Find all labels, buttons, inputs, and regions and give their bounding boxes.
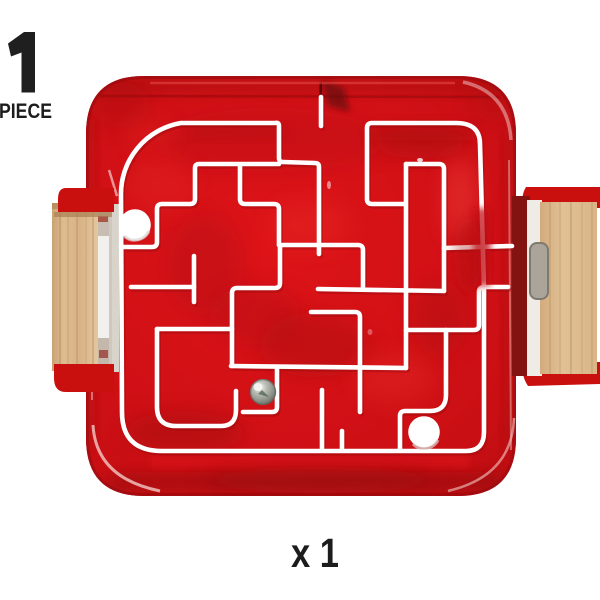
svg-text:x 1: x 1 (291, 530, 339, 576)
svg-text:PIECE: PIECE (0, 100, 52, 123)
